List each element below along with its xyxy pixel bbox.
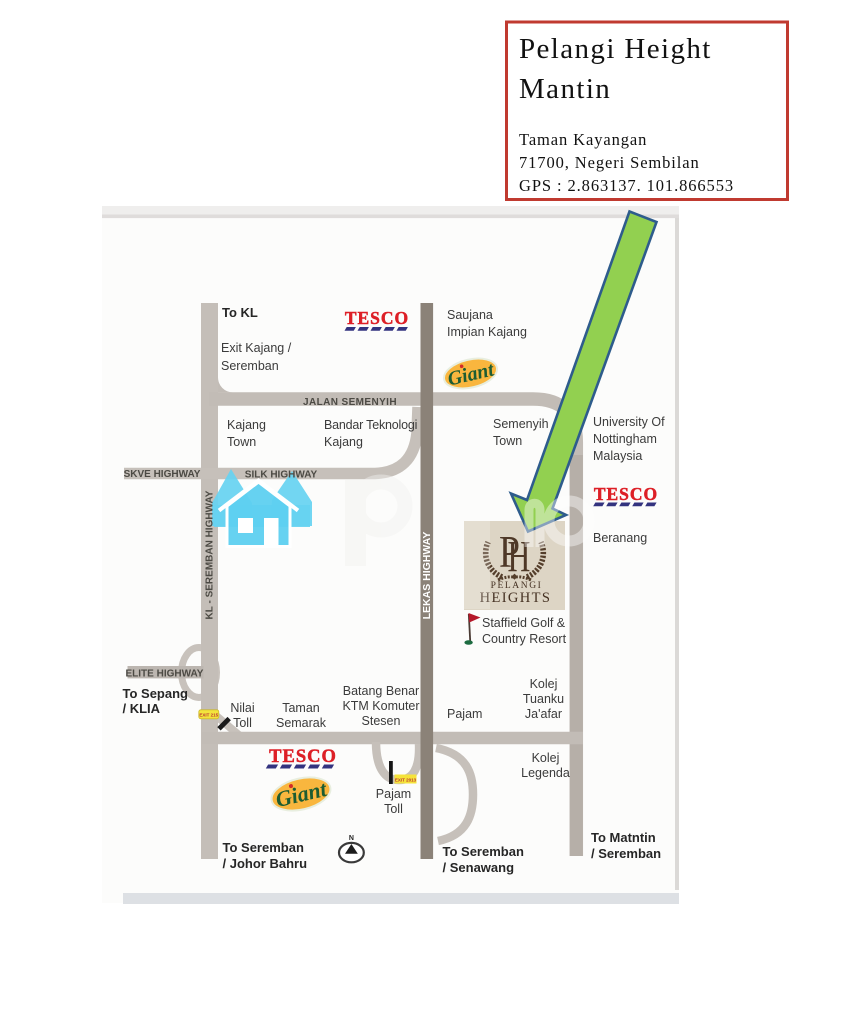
svg-text:TESCO: TESCO: [269, 747, 337, 767]
svg-text:Pajam: Pajam: [447, 707, 482, 721]
svg-text:Impian Kajang: Impian Kajang: [447, 325, 527, 339]
svg-text:Semarak: Semarak: [276, 716, 327, 730]
svg-text:Beranang: Beranang: [593, 531, 647, 545]
svg-text:Nilai: Nilai: [230, 701, 254, 715]
svg-text:EXIT 2013: EXIT 2013: [395, 778, 417, 783]
svg-text:/ Senawang: / Senawang: [443, 860, 515, 875]
svg-text:Kolej: Kolej: [530, 677, 558, 691]
svg-text:/ Johor Bahru: / Johor Bahru: [223, 856, 308, 871]
svg-text:TESCO: TESCO: [345, 308, 409, 328]
svg-text:TESCO: TESCO: [594, 484, 658, 504]
svg-text:Toll: Toll: [384, 802, 403, 816]
svg-text:Semenyih: Semenyih: [493, 417, 549, 431]
svg-text:Pajam: Pajam: [376, 787, 411, 801]
svg-text:JALAN SEMENYIH: JALAN SEMENYIH: [303, 397, 397, 408]
svg-text:Saujana: Saujana: [447, 308, 493, 322]
svg-text:SILK HIGHWAY: SILK HIGHWAY: [245, 470, 318, 481]
svg-text:71700, Negeri Sembilan: 71700, Negeri Sembilan: [519, 153, 700, 172]
svg-text:ELITE HIGHWAY: ELITE HIGHWAY: [126, 669, 204, 680]
svg-text:Seremban: Seremban: [221, 359, 279, 373]
svg-text:KTM Komuter: KTM Komuter: [342, 699, 419, 713]
svg-text:Toll: Toll: [233, 716, 252, 730]
svg-text:Kolej: Kolej: [532, 751, 560, 765]
svg-text:Town: Town: [493, 434, 522, 448]
svg-text:Nottingham: Nottingham: [593, 432, 657, 446]
svg-text:To Seremban: To Seremban: [223, 840, 304, 855]
svg-text:Batang Benar: Batang Benar: [343, 684, 419, 698]
svg-text:Exit Kajang /: Exit Kajang /: [221, 341, 292, 355]
svg-text:Malaysia: Malaysia: [593, 449, 642, 463]
svg-text:Taman Kayangan: Taman Kayangan: [519, 130, 647, 149]
svg-text:N: N: [349, 835, 354, 842]
svg-text:Tuanku: Tuanku: [523, 692, 564, 706]
svg-text:Country Resort: Country Resort: [482, 632, 567, 646]
svg-text:University Of: University Of: [593, 415, 665, 429]
svg-text:HEIGHTS: HEIGHTS: [480, 590, 552, 606]
svg-text:Legenda: Legenda: [521, 766, 570, 780]
svg-text:LEKAS HIGHWAY: LEKAS HIGHWAY: [421, 532, 433, 620]
svg-text:To Sepang: To Sepang: [123, 686, 189, 701]
svg-text:Kajang: Kajang: [227, 418, 266, 432]
svg-text:EXIT 215: EXIT 215: [199, 713, 218, 718]
svg-text:Mantin: Mantin: [519, 73, 611, 105]
svg-text:/ KLIA: / KLIA: [123, 701, 161, 716]
svg-text:Staffield Golf &: Staffield Golf &: [482, 616, 566, 630]
svg-text:To Seremban: To Seremban: [443, 844, 524, 859]
svg-text:GPS : 2.863137. 101.866553: GPS : 2.863137. 101.866553: [519, 176, 734, 195]
svg-text:To KL: To KL: [222, 305, 258, 320]
svg-text:Taman: Taman: [282, 701, 320, 715]
svg-text:Ja'afar: Ja'afar: [525, 707, 562, 721]
svg-text:Town: Town: [227, 435, 256, 449]
svg-text:Stesen: Stesen: [362, 714, 401, 728]
svg-text:Kajang: Kajang: [324, 435, 363, 449]
svg-text:Pelangi Height: Pelangi Height: [519, 33, 712, 65]
svg-text:KL - SEREMBAN HIGHWAY: KL - SEREMBAN HIGHWAY: [205, 490, 216, 619]
svg-text:Bandar Teknologi: Bandar Teknologi: [324, 418, 417, 432]
svg-text:To Matntin: To Matntin: [591, 830, 656, 845]
svg-text:SKVE HIGHWAY: SKVE HIGHWAY: [124, 469, 201, 480]
svg-text:/ Seremban: / Seremban: [591, 846, 661, 861]
